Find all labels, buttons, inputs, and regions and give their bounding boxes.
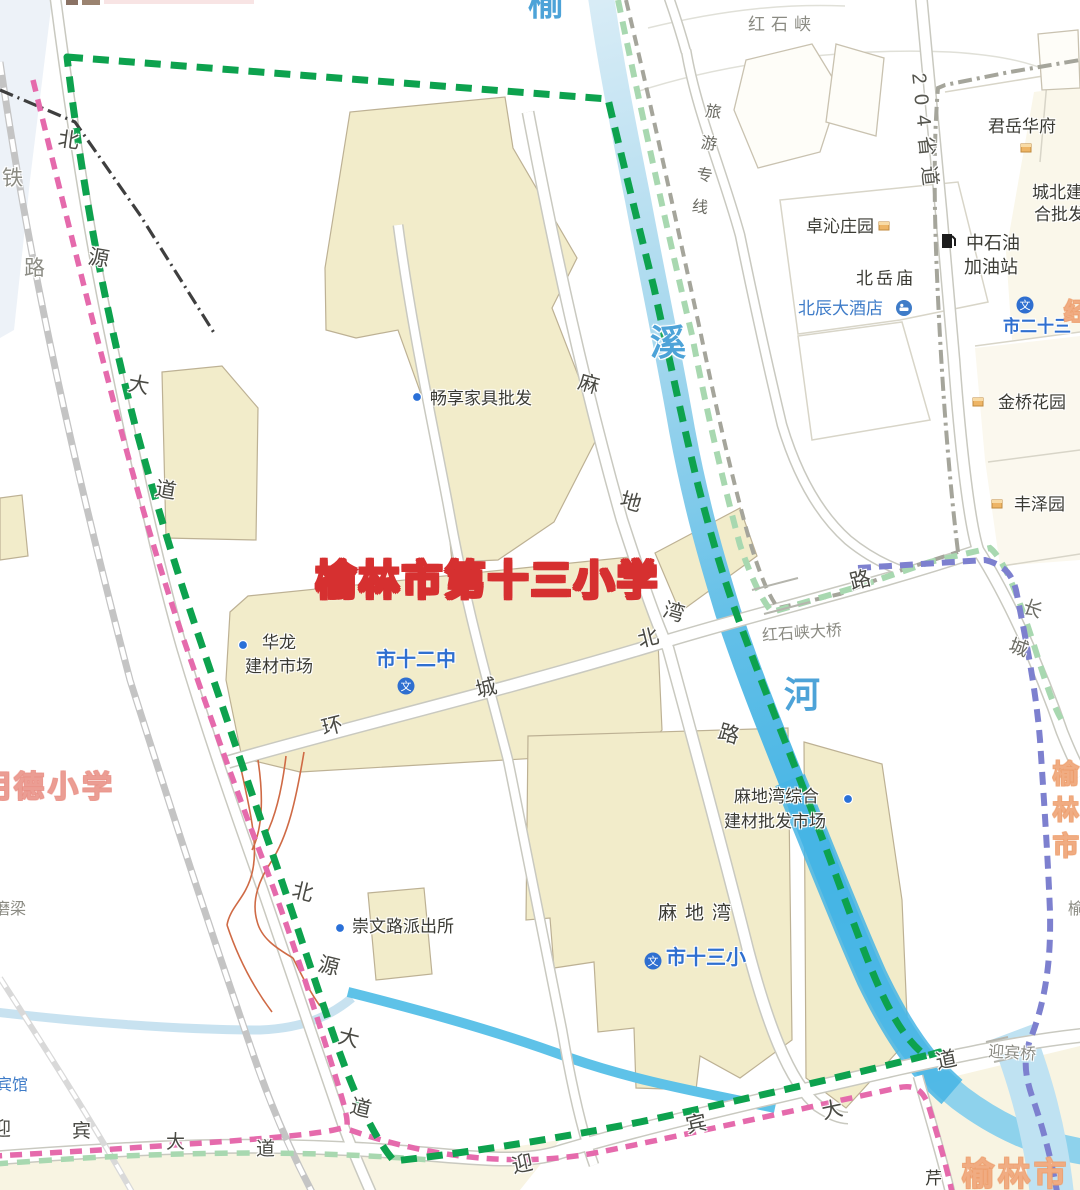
hotel-icon-beichen [896, 300, 912, 316]
label-partial-yu: 榆 [1068, 902, 1080, 919]
label-zhuoqin-estate: 卓沁庄园 [806, 218, 874, 236]
cube-icon-zhuoqin [879, 222, 889, 230]
label-changxiang-furniture: 畅享家具批发 [430, 390, 532, 408]
road-label-beiyuan: 道 [153, 478, 178, 503]
school-icon-shi13: 文 [645, 953, 662, 970]
railway-label-char: 路 [24, 258, 45, 280]
road-label-yingbin: 大 [820, 1098, 845, 1124]
label-chengbei-line1: 城北建 [1032, 184, 1080, 202]
label-chongwen-police: 崇文路派出所 [352, 918, 454, 936]
svg-text:文: 文 [1020, 298, 1031, 312]
label-beiyuemiao: 北岳庙 [856, 270, 916, 288]
school-icon-shi12: 文 [398, 678, 415, 695]
road-label-yingbin: 宾 [72, 1122, 91, 1142]
label-yulin-right-edge: 榆林市 [1050, 760, 1077, 868]
tint-right-mid [975, 336, 1080, 566]
svg-text:文: 文 [401, 679, 412, 693]
label-madiwan-market-line1: 麻地湾综合 [734, 788, 819, 806]
river-name-char: 溪 [650, 324, 688, 362]
road-label-yingbin: 道 [934, 1048, 959, 1074]
cropped-banner [66, 0, 254, 5]
label-partial-qin: 芹 [925, 1170, 942, 1188]
svg-text:文: 文 [648, 954, 659, 968]
label-beichen-hotel: 北辰大酒店 [798, 300, 883, 318]
label-fengzeyuan: 丰泽园 [1014, 496, 1065, 514]
label-binguan: 宾馆 [0, 1078, 28, 1095]
label-petrochina-line1: 中石油 [966, 234, 1020, 253]
label-madiwan: 麻地湾 [658, 904, 739, 924]
river-name-char: 榆 [528, 0, 566, 22]
label-petrochina-line2: 加油站 [964, 258, 1018, 277]
road-label-yingbin: 迎 [510, 1152, 535, 1178]
railway-label-char: 铁 [2, 168, 23, 190]
cube-icon-jinqiao [973, 398, 983, 406]
road-label-yingbin: 大 [166, 1133, 185, 1153]
poi-dot-hualong [239, 641, 248, 650]
poi-dot-chongwen [336, 924, 345, 933]
label-moliang: 磨梁 [0, 902, 26, 919]
label-chengbei-line2: 合批发 [1034, 206, 1080, 224]
road-label-yingbin: 迎 [0, 1120, 11, 1140]
label-school-23: 市二十三 [1003, 318, 1071, 336]
cube-icon-junyue [1021, 144, 1031, 152]
poi-dot-changxiang [413, 393, 422, 402]
label-school-12: 市十二中 [376, 650, 456, 671]
label-jinqiao-garden: 金桥花园 [998, 394, 1066, 412]
road-label-yingbin: 宾 [684, 1112, 709, 1138]
label-school-13: 市十三小 [666, 948, 746, 969]
label-junyue-huafu: 君岳华府 [988, 118, 1056, 136]
label-partial-jing: 经 [1064, 300, 1080, 325]
river-name-char: 河 [784, 676, 822, 714]
road-label-beiyuan: 源 [86, 246, 111, 271]
label-mingde-school: 明德小学 [0, 772, 116, 804]
label-madiwan-market-line2: 建材批发市场 [724, 813, 826, 831]
map-screenshot: 文 文 文 铁 路 北 源 大 道 北 源 大 道 环 城 北 路 麻 地 湾 … [0, 0, 1080, 1190]
school-icon-shi23: 文 [1017, 297, 1034, 314]
road-label-beiyuan: 北 [57, 129, 81, 154]
district-title: 榆林市第十三小学 [316, 560, 660, 602]
label-hongshixia: 红石峡 [748, 16, 817, 34]
poi-dot-madiwan-market [844, 795, 853, 804]
cube-icon-fengze [992, 500, 1002, 508]
road-label-beiyuan: 大 [126, 373, 151, 398]
road-label-yingbin: 道 [256, 1140, 275, 1160]
label-hualong-line2: 建材市场 [245, 658, 313, 676]
label-yingbin-bridge: 迎宾桥 [987, 1044, 1036, 1064]
label-yulin-bottom-edge: 榆林市 [962, 1158, 1070, 1190]
label-hualong-line1: 华龙 [262, 634, 296, 652]
gas-station-icon [942, 234, 955, 248]
